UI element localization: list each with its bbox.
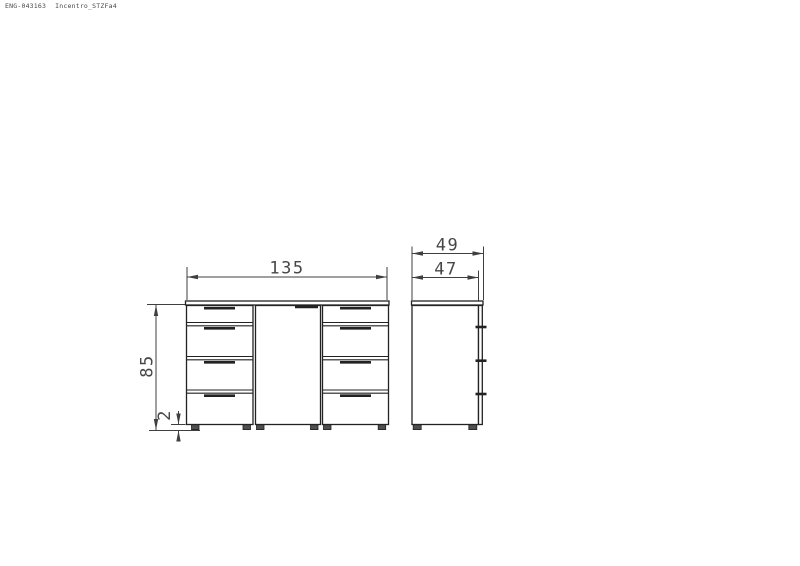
drawer-stack-left xyxy=(187,306,254,425)
front-view xyxy=(186,301,390,430)
dimension-depth-total-label: 49 xyxy=(436,236,459,256)
cabinet-foot xyxy=(413,425,421,430)
dimension-height-label: 85 xyxy=(138,354,158,377)
arrowhead-down-icon xyxy=(176,414,180,425)
arrowhead-right-icon xyxy=(473,251,484,255)
cabinet-foot xyxy=(192,425,200,430)
arrowhead-up-icon xyxy=(154,305,158,316)
side-view xyxy=(412,301,487,430)
arrowhead-up-icon xyxy=(176,431,180,442)
cabinet-foot xyxy=(243,425,251,430)
cabinet-foot xyxy=(311,425,319,430)
dimension-plinth-label: 2 xyxy=(155,409,175,421)
dimension-depth-body-label: 47 xyxy=(434,260,457,280)
arrowhead-left-icon xyxy=(412,275,423,279)
dimension-width-label: 135 xyxy=(269,259,304,279)
cabinet-foot xyxy=(378,425,386,430)
door-front xyxy=(256,306,321,425)
drawer-stack-right xyxy=(323,306,389,425)
front-panel-edge xyxy=(479,306,483,425)
carcass-side xyxy=(412,306,479,425)
side-view-dimensions: 49 47 xyxy=(412,236,484,303)
top-panel xyxy=(186,301,390,305)
cabinet-foot xyxy=(324,425,332,430)
technical-drawing-canvas: 135 85 2 49 47 xyxy=(0,0,800,566)
arrowhead-left-icon xyxy=(412,251,423,255)
arrowhead-right-icon xyxy=(376,275,387,279)
arrowhead-left-icon xyxy=(187,275,198,279)
drawing-sheet: { "header": { "doc_code": "ENG-043163", … xyxy=(0,0,800,566)
top-panel-side xyxy=(412,301,484,305)
arrowhead-right-icon xyxy=(468,275,479,279)
cabinet-foot xyxy=(469,425,477,430)
cabinet-foot xyxy=(257,425,265,430)
